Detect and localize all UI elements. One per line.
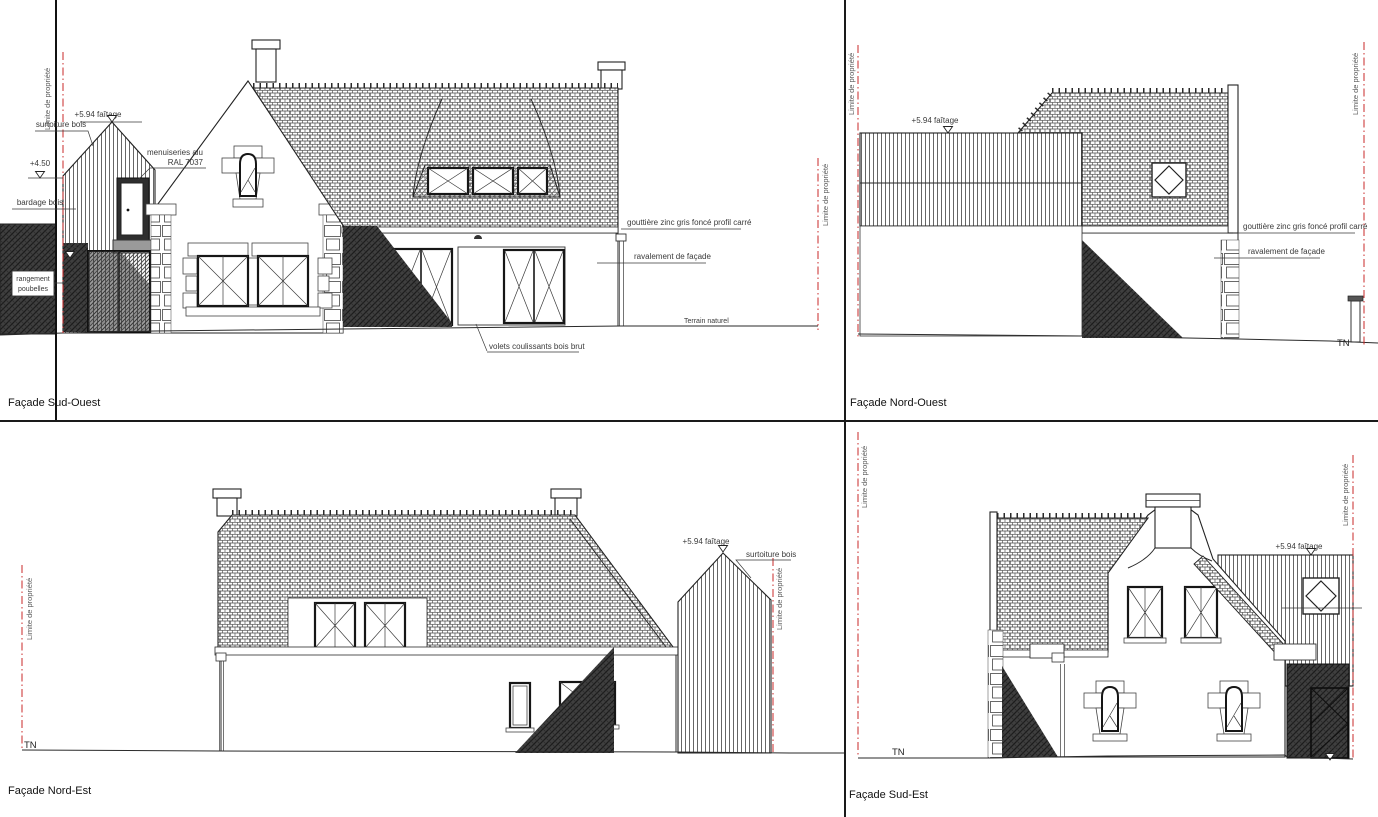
annex-sliding-door <box>88 251 150 332</box>
svg-text:volets coulissants bois brut: volets coulissants bois brut <box>489 342 585 351</box>
svg-text:+5.94 faîtage: +5.94 faîtage <box>1276 542 1323 551</box>
ravalement-annotation: ravalement de façade <box>597 252 711 263</box>
shadow <box>63 243 88 332</box>
surtoiture-annotation: surtoiture bois <box>35 120 93 146</box>
limite-label-right: Limite de propriété <box>821 164 830 226</box>
limite-label-left: Limite de propriété <box>25 578 34 640</box>
annex-surtoiture <box>63 122 155 333</box>
facade-sud-ouest-drawing: Limite de propriété Limite de propriété … <box>0 0 845 421</box>
svg-text:+2.15: +2.15 <box>64 243 82 250</box>
elevation-sheet: Limite de propriété Limite de propriété … <box>0 0 1378 817</box>
right-wall <box>343 226 626 327</box>
svg-text:menuiseries alu: menuiseries alu <box>147 148 203 157</box>
svg-text:RAL 7037: RAL 7037 <box>168 158 204 167</box>
main-wall <box>216 647 676 753</box>
main-wall <box>1082 233 1239 338</box>
gutter <box>342 227 618 233</box>
dark-gate: +0.00 <box>1287 664 1349 760</box>
limite-label-left: Limite de propriété <box>860 446 869 508</box>
surtoiture-annotation: surtoiture bois <box>736 550 796 578</box>
sliding-glass-door-2 <box>458 247 565 325</box>
svg-text:+5.94 faîtage: +5.94 faîtage <box>683 537 730 546</box>
boundary-post <box>1348 296 1363 342</box>
gutter-box-right <box>1274 644 1316 660</box>
limite-label-right: Limite de propriété <box>775 568 784 630</box>
quoins-left <box>151 215 171 333</box>
level-450-annotation: +4.50 <box>28 159 63 178</box>
svg-text:ravalement de façade: ravalement de façade <box>634 252 711 261</box>
tn-label: TN <box>24 740 37 751</box>
chimney <box>256 49 276 82</box>
gouttiere-annotation: gouttière zinc gris foncé profil carré <box>1233 222 1368 233</box>
chimney-right <box>551 489 581 516</box>
narrow-door <box>506 683 534 732</box>
annex-surtoiture <box>860 133 1082 336</box>
facade-title: Façade Sud-Ouest <box>8 397 100 409</box>
vent <box>474 235 482 239</box>
svg-text:ravalement de façade: ravalement de façade <box>1248 247 1325 256</box>
svg-text:rangement: rangement <box>16 276 50 283</box>
quoins <box>988 630 1003 758</box>
annex-door <box>113 178 153 253</box>
svg-text:surtoiture bois: surtoiture bois <box>36 120 86 129</box>
gutter-elbow <box>1052 653 1064 662</box>
svg-text:gouttière zinc gris foncé prof: gouttière zinc gris foncé profil carré <box>627 218 752 227</box>
chimney-cap <box>598 62 625 70</box>
facade-title: Façade Nord-Est <box>8 785 91 797</box>
svg-text:poubelles: poubelles <box>18 286 48 293</box>
svg-text:surtoiture bois: surtoiture bois <box>746 550 796 559</box>
svg-text:+4.50: +4.50 <box>30 159 51 168</box>
vertical-divider <box>844 0 846 817</box>
diamond-window <box>1152 163 1186 197</box>
limite-label-right: Limite de propriété <box>1351 53 1360 115</box>
gutter-elbow <box>216 653 226 661</box>
tn-label: TN <box>892 747 905 758</box>
level-000-label: +0.00 <box>1322 746 1339 753</box>
chimney-left <box>213 489 241 516</box>
terrain-naturel-label: Terrain naturel <box>684 318 729 325</box>
facade-sud-est-drawing: +0.00 Limite de propriété Limite de prop… <box>845 421 1378 817</box>
shadow <box>1082 240 1183 338</box>
main-roof <box>215 513 680 656</box>
facade-nord-ouest-drawing: Limite de propriété Limite de propriété … <box>845 0 1378 421</box>
faitage-annotation: +5.94 faîtage <box>912 116 959 133</box>
annex-wall <box>860 226 1082 336</box>
chimney-cap <box>252 40 280 49</box>
faitage-annotation: +5.94 faîtage <box>1276 542 1323 555</box>
downspout <box>620 241 624 326</box>
svg-text:+5.94 faîtage: +5.94 faîtage <box>912 116 959 125</box>
gouttiere-annotation: gouttière zinc gris foncé profil carré <box>621 218 752 229</box>
horizontal-divider <box>0 420 1378 422</box>
faitage-annotation: +5.94 faîtage <box>683 537 730 552</box>
volets-annotation: volets coulissants bois brut <box>476 324 585 352</box>
bargeboard <box>1228 85 1238 233</box>
facade-title: Façade Sud-Est <box>849 789 928 801</box>
facade-nord-est-drawing: Limite de propriété Limite de propriété … <box>0 421 845 817</box>
annex-surtoiture <box>678 553 771 753</box>
svg-text:gouttière zinc gris foncé prof: gouttière zinc gris foncé profil carré <box>1243 222 1368 231</box>
quoins <box>1221 240 1239 338</box>
tn-label: TN <box>1337 338 1350 349</box>
limite-label-left: Limite de propriété <box>847 53 856 115</box>
gutter-elbow <box>616 234 626 241</box>
gutter <box>1082 226 1228 233</box>
limite-label-right: Limite de propriété <box>1341 464 1350 526</box>
diamond-window <box>1303 578 1339 614</box>
window-band <box>288 598 427 651</box>
svg-text:bardage bois: bardage bois <box>17 198 63 207</box>
facade-title: Façade Nord-Ouest <box>850 397 947 409</box>
